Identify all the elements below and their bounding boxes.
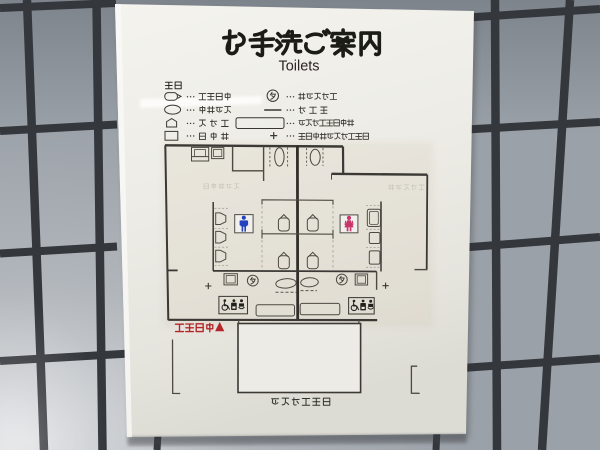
svg-text:Toilets: Toilets <box>278 59 319 75</box>
